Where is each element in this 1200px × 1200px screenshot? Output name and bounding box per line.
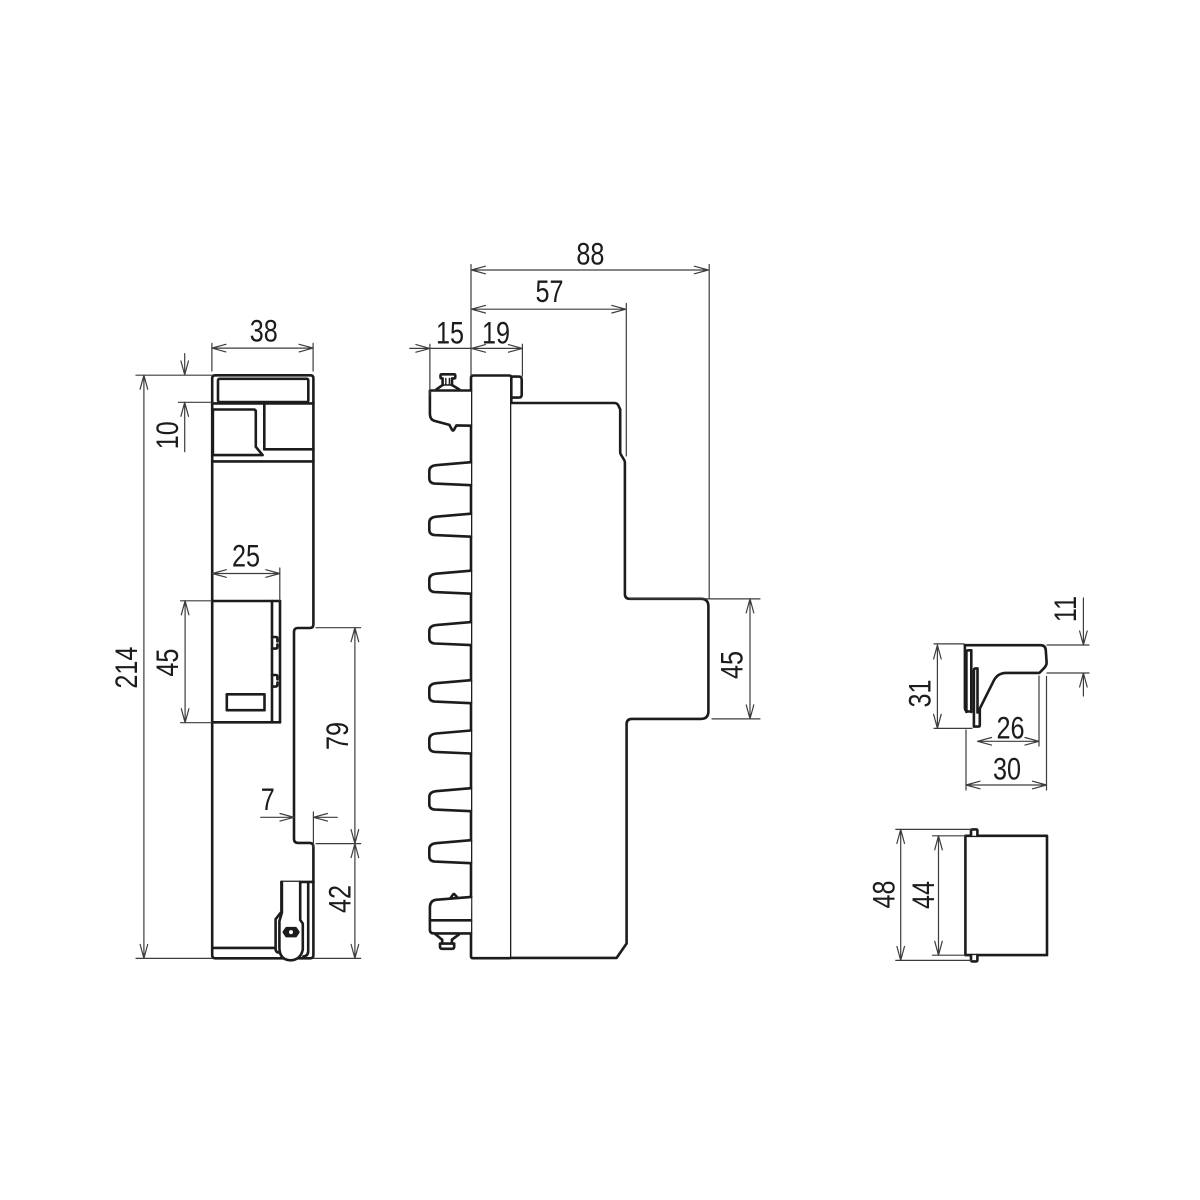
- svg-text:19: 19: [482, 316, 510, 351]
- svg-text:26: 26: [996, 711, 1024, 746]
- svg-text:48: 48: [867, 880, 902, 908]
- svg-text:38: 38: [250, 314, 278, 349]
- svg-text:45: 45: [151, 649, 186, 677]
- svg-text:44: 44: [906, 881, 941, 909]
- svg-text:7: 7: [261, 782, 275, 817]
- svg-text:10: 10: [151, 421, 186, 449]
- svg-text:42: 42: [323, 885, 358, 913]
- svg-text:57: 57: [535, 275, 563, 310]
- svg-text:88: 88: [576, 237, 604, 272]
- svg-text:214: 214: [109, 646, 144, 688]
- svg-text:25: 25: [232, 539, 260, 574]
- svg-text:30: 30: [993, 752, 1021, 787]
- svg-text:45: 45: [715, 651, 750, 679]
- svg-text:31: 31: [903, 679, 938, 707]
- svg-text:11: 11: [1048, 596, 1083, 622]
- svg-text:79: 79: [321, 722, 356, 750]
- svg-text:15: 15: [436, 316, 464, 351]
